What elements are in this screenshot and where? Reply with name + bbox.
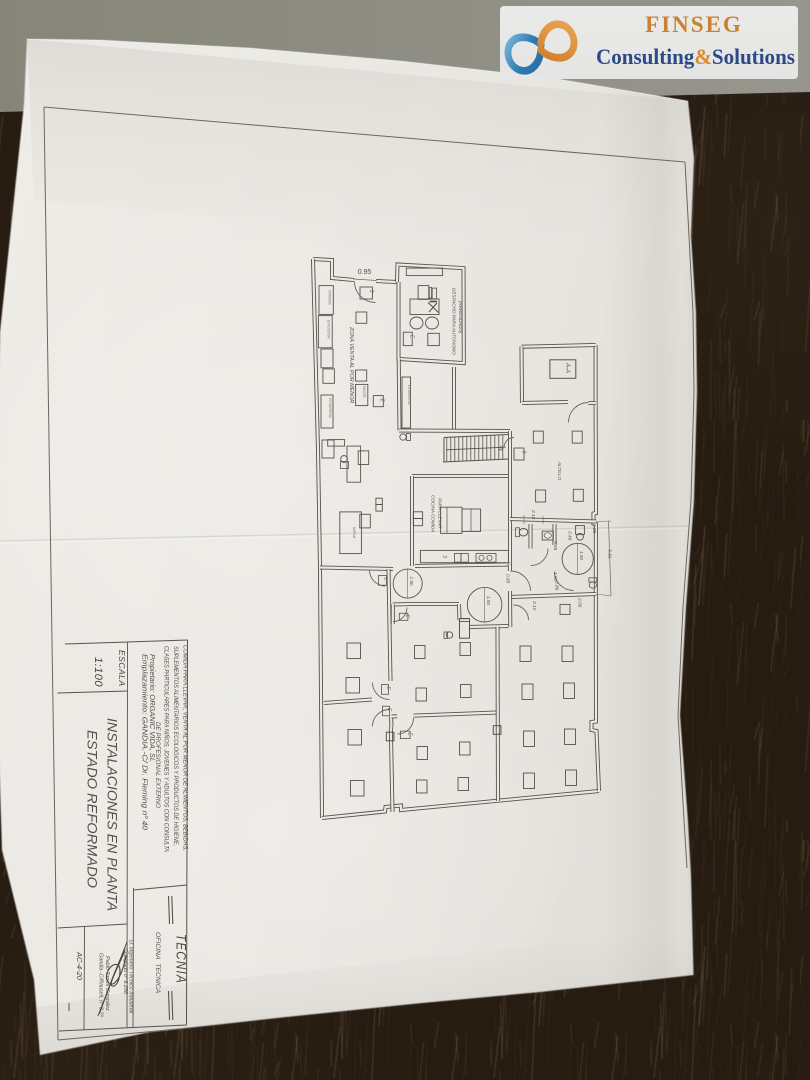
svg-text:COMIDA PARA LLEVAR, VENTA AL P: COMIDA PARA LLEVAR, VENTA AL POR MENOR D… xyxy=(182,645,189,851)
svg-text:Gandia.-C/Rausell, n° 3-2ª: Gandia.-C/Rausell, n° 3-2ª xyxy=(98,953,104,1017)
svg-text:PARA LLEVAR: PARA LLEVAR xyxy=(438,498,443,529)
svg-text:ESCALA: ESCALA xyxy=(117,650,127,687)
svg-text:1.50: 1.50 xyxy=(409,577,414,586)
svg-text:3: 3 xyxy=(441,555,447,558)
svg-text:CLASES PARTICULARES PARA NIÑOS: CLASES PARTICULARES PARA NIÑOS, JOVENES … xyxy=(163,646,170,852)
svg-text:(ARRENDADO): (ARRENDADO) xyxy=(458,301,463,334)
svg-text:TECNIA: TECNIA xyxy=(174,934,190,984)
svg-text:1:100: 1:100 xyxy=(92,657,104,687)
svg-text:0.85: 0.85 xyxy=(591,524,597,534)
svg-text:ESTANTERIA: ESTANTERIA xyxy=(328,398,332,418)
svg-text:A-A: A-A xyxy=(564,362,570,373)
svg-text:0.86: 0.86 xyxy=(554,581,560,591)
svg-text:ESTADO REFORMADO: ESTADO REFORMADO xyxy=(85,730,100,888)
svg-text:Consulting&Solutions: Consulting&Solutions xyxy=(596,44,795,69)
svg-text:1.50: 1.50 xyxy=(486,596,491,605)
svg-text:0.95: 0.95 xyxy=(358,269,372,276)
svg-text:INSTALACIONES EN PLANTA: INSTALACIONES EN PLANTA xyxy=(105,718,120,911)
svg-text:COCINA COMIDA: COCINA COMIDA xyxy=(431,495,436,532)
svg-text:0.65: 0.65 xyxy=(552,541,558,551)
svg-text:MESA: MESA xyxy=(352,527,357,539)
svg-text:2.10: 2.10 xyxy=(530,509,536,520)
svg-text:EXPOSITOR: EXPOSITOR xyxy=(327,320,331,339)
svg-text:SUPLEMENTOS ALIMENTARIOS ECOLO: SUPLEMENTOS ALIMENTARIOS ECOLOGICOS Y PR… xyxy=(172,646,179,846)
svg-text:OFICINA TECNICA: OFICINA TECNICA xyxy=(154,932,161,994)
svg-text:Emplazamiento: GANDIA.-C/ Dr.: Emplazamiento: GANDIA.-C/ Dr. Fleming nº… xyxy=(141,654,150,830)
svg-text:MOSTR.: MOSTR. xyxy=(362,386,366,399)
svg-text:2.10: 2.10 xyxy=(531,600,537,611)
svg-text:ESTANTERIA: ESTANTERIA xyxy=(407,385,411,405)
svg-text:1.50: 1.50 xyxy=(579,551,584,560)
svg-text:AC-4-20: AC-4-20 xyxy=(75,951,84,981)
svg-text:FINSEG: FINSEG xyxy=(645,12,743,37)
svg-text:VITRINAS: VITRINAS xyxy=(328,290,332,306)
svg-text:3: 3 xyxy=(521,451,527,454)
svg-text:0.46: 0.46 xyxy=(567,531,573,541)
svg-text:DESPACHO PARA AUTONOMO: DESPACHO PARA AUTONOMO xyxy=(452,288,457,355)
svg-text:0.85: 0.85 xyxy=(505,574,511,584)
svg-text:ZONA VENTA AL POR MENOR: ZONA VENTA AL POR MENOR xyxy=(348,326,354,403)
svg-text:2.06: 2.06 xyxy=(577,597,583,608)
svg-text:ALTILLO: ALTILLO xyxy=(557,461,562,480)
